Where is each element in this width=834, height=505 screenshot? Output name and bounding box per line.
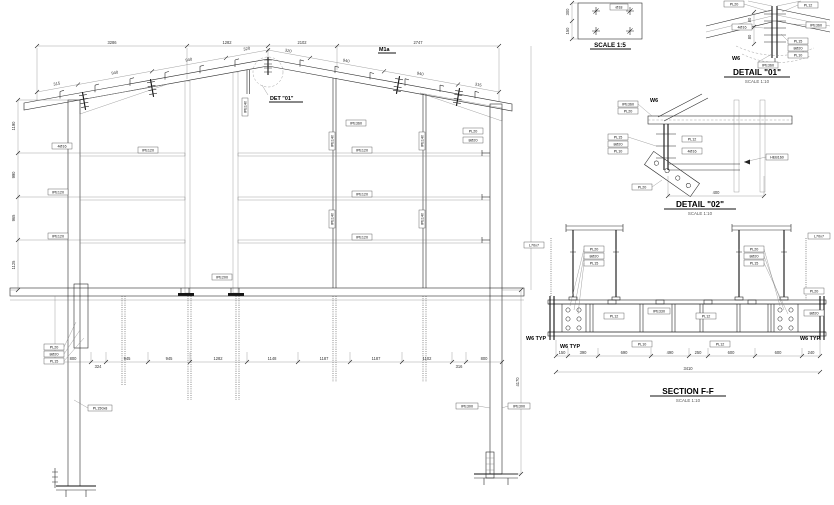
svg-text:IPE140: IPE140 (244, 101, 248, 113)
section-mark: 8Ø20 (608, 141, 628, 147)
svg-text:PL15: PL15 (794, 40, 803, 44)
section-ff: L70x7 L70x7 PL20 8Ø20 PL15 PL20 8Ø20 PL1… (524, 224, 830, 403)
svg-text:80: 80 (747, 34, 752, 39)
detail01-title: DETAIL "01" (733, 68, 781, 77)
weld-note: W6 TYP (526, 336, 546, 342)
svg-text:IPE300: IPE300 (461, 405, 473, 409)
opening-jamb-left (185, 81, 190, 293)
section-mark: 8Ø20 (744, 253, 764, 259)
svg-text:800: 800 (481, 356, 489, 361)
svg-text:IPE120: IPE120 (142, 149, 154, 153)
piles (122, 296, 426, 400)
svg-text:945: 945 (166, 356, 174, 361)
section-mark: PL12 (696, 313, 716, 319)
section-mark: PL150x8 (88, 405, 112, 411)
svg-text:IPE140: IPE140 (421, 135, 425, 147)
section-title: SECTION F-F (662, 387, 713, 396)
svg-text:IPE120: IPE120 (356, 149, 368, 153)
svg-text:4Ø16: 4Ø16 (57, 145, 66, 149)
section-mark: L70x7 (808, 233, 830, 239)
bolt-group-right (778, 308, 793, 330)
svg-text:IPE330: IPE330 (653, 310, 665, 314)
floor-beam (10, 288, 524, 296)
roof-brace (658, 94, 708, 121)
svg-text:IPE300: IPE300 (513, 405, 525, 409)
svg-text:690: 690 (621, 350, 629, 355)
svg-text:PL20: PL20 (810, 290, 819, 294)
section-mark: PL20 (463, 128, 483, 134)
svg-text:1148: 1148 (268, 356, 278, 361)
section-scale: SCALE 1:10 (676, 398, 701, 403)
svg-text:250: 250 (695, 350, 703, 355)
section-mark: PL15 (44, 358, 64, 364)
section-mark: IPE330 (648, 308, 670, 314)
cad-drawing-canvas: DET "01" M1a 3286 1282 2102 2747 315 940… (0, 0, 834, 505)
svg-text:PL20: PL20 (624, 110, 633, 114)
main-elevation: DET "01" M1a 3286 1282 2102 2747 315 940… (10, 40, 531, 497)
svg-text:PL10: PL10 (638, 343, 647, 347)
end-plate (664, 124, 668, 170)
svg-text:PL20: PL20 (638, 186, 647, 190)
section-mark: 8Ø20 (44, 351, 64, 357)
svg-text:8Ø20: 8Ø20 (589, 255, 598, 259)
svg-text:IPE360: IPE360 (622, 103, 634, 107)
eave-haunch-left (80, 84, 168, 114)
svg-text:Ø18: Ø18 (616, 6, 623, 10)
ridge-post-stub (247, 70, 250, 94)
section-mark: IPE140 (242, 98, 248, 116)
svg-text:4170: 4170 (515, 377, 520, 387)
section-mark: PL10 (788, 52, 808, 58)
svg-text:1187: 1187 (372, 356, 382, 361)
svg-text:8Ø20: 8Ø20 (749, 255, 758, 259)
interior-posts (333, 78, 426, 288)
svg-text:490: 490 (667, 350, 675, 355)
section-mark: 4Ø16 (52, 143, 72, 149)
purlin-flags-right (300, 60, 479, 99)
svg-text:800: 800 (70, 356, 78, 361)
section-mark: IPE120 (48, 189, 68, 195)
svg-text:1282: 1282 (213, 356, 223, 361)
svg-text:990: 990 (11, 171, 16, 179)
detail-column (760, 100, 765, 192)
svg-text:PL12: PL12 (716, 343, 725, 347)
svg-text:4Ø16: 4Ø16 (737, 26, 746, 30)
section-mark: PL12 (798, 2, 818, 8)
svg-text:8Ø20: 8Ø20 (49, 353, 58, 357)
opening-jamb-right (233, 72, 238, 293)
section-mark: PL12 (682, 136, 702, 142)
svg-text:240: 240 (808, 350, 816, 355)
svg-text:945: 945 (124, 356, 132, 361)
svg-text:PL20: PL20 (750, 248, 759, 252)
section-mark: PL12 (710, 341, 730, 347)
weld-note: W6 TYP (800, 336, 820, 342)
section-mark: 8Ø20 (804, 310, 824, 316)
svg-text:IPE120: IPE120 (52, 191, 64, 195)
dim-chain-section: 150 390 690 490 250 600 600 240 3410 (554, 340, 822, 374)
svg-text:940: 940 (111, 69, 119, 75)
section-mark: IPE120 (48, 233, 68, 239)
section-mark: 8Ø20 (788, 45, 808, 51)
section-mark: IPE200 (212, 274, 232, 280)
section-mark: PL15 (608, 134, 628, 140)
svg-text:L70x7: L70x7 (814, 235, 824, 239)
section-mark: IPE120 (352, 234, 372, 240)
svg-text:IPE140: IPE140 (331, 213, 335, 225)
svg-text:2747: 2747 (413, 40, 423, 45)
svg-text:PL20: PL20 (590, 248, 599, 252)
section-mark: IPE300 (456, 403, 478, 409)
svg-text:IPE140: IPE140 (331, 135, 335, 147)
drawing-sheet: DET "01" M1a 3286 1282 2102 2747 315 940… (0, 0, 834, 505)
section-mark: IPE360 (618, 101, 638, 107)
svg-text:1282: 1282 (222, 40, 232, 45)
svg-text:IPE360: IPE360 (810, 24, 822, 28)
svg-text:300: 300 (565, 8, 570, 16)
right-column (490, 104, 502, 474)
section-mark: IPE140 (419, 210, 425, 228)
section-mark: PL20 (44, 344, 64, 350)
baseplate-detail: Ø18 300 150 SCALE 1:5 (565, 1, 642, 49)
section-mark: IPE360 (806, 22, 826, 28)
section-mark: PL20 (584, 246, 604, 252)
section-mark: PL15 (584, 260, 604, 266)
svg-text:PL12: PL12 (610, 315, 619, 319)
svg-text:PL10: PL10 (614, 150, 623, 154)
svg-text:8Ø20: 8Ø20 (468, 139, 477, 143)
weld-note: W6 (650, 98, 658, 104)
section-mark: PL10 (608, 148, 628, 154)
svg-text:IPE200: IPE200 (216, 276, 228, 280)
girts (80, 153, 490, 243)
svg-text:4Ø16: 4Ø16 (687, 150, 696, 154)
svg-text:PL20: PL20 (50, 346, 59, 350)
section-mark: PL20 (618, 108, 638, 114)
svg-text:HEB160: HEB160 (770, 156, 784, 160)
section-mark: PL20 (724, 1, 744, 7)
svg-text:IPE140: IPE140 (421, 213, 425, 225)
baseplate-scale-label: SCALE 1:5 (594, 42, 626, 49)
weld-note: W6 (732, 56, 740, 62)
bolted-splice-ladder (74, 284, 88, 348)
svg-text:IPE360: IPE360 (762, 64, 774, 68)
svg-text:965: 965 (11, 214, 16, 222)
svg-text:150: 150 (559, 350, 567, 355)
svg-text:PL150x8: PL150x8 (93, 407, 108, 411)
stiffeners (562, 304, 798, 332)
section-mark: PL12 (604, 313, 624, 319)
bolt-group-left (566, 308, 581, 330)
section-mark: 4Ø16 (732, 24, 752, 30)
svg-text:390: 390 (580, 350, 588, 355)
section-mark: PL20 (804, 288, 824, 294)
purlin-flags-left (60, 59, 239, 99)
dim-chain-left: 1190 990 965 1125 (10, 98, 80, 292)
section-mark: IPE140 (419, 132, 425, 150)
section-mark: IPE140 (329, 210, 335, 228)
svg-text:PL12: PL12 (804, 4, 813, 8)
svg-text:PL15: PL15 (50, 360, 59, 364)
svg-text:2102: 2102 (297, 40, 307, 45)
detail-02: W6 400 PL15 8Ø20 PL10 IPE360 PL20 PL12 4… (608, 94, 792, 216)
svg-text:3410: 3410 (683, 366, 693, 371)
svg-text:940: 940 (416, 70, 424, 76)
svg-text:320: 320 (284, 47, 292, 53)
section-mark: PL15 (788, 38, 808, 44)
section-mark: PL20 (632, 184, 652, 190)
svg-text:IPE120: IPE120 (356, 193, 368, 197)
detail01-scale: SCALE 1:10 (745, 79, 770, 84)
jamb-base-pad (178, 293, 194, 296)
member-tag: M1a (379, 47, 390, 53)
svg-text:315: 315 (474, 81, 482, 87)
svg-text:IPE360: IPE360 (350, 122, 362, 126)
svg-text:1102: 1102 (423, 356, 433, 361)
svg-text:PL15: PL15 (614, 136, 623, 140)
section-mark: PL10 (632, 341, 652, 347)
svg-text:PL15: PL15 (590, 262, 599, 266)
section-mark: IPE120 (352, 191, 372, 197)
svg-text:PL20: PL20 (469, 130, 478, 134)
svg-text:PL15: PL15 (750, 262, 759, 266)
dim-chain-bottom: 800 324 945 945 1282 1148 1187 1187 1102… (53, 296, 504, 369)
svg-text:940: 940 (342, 57, 350, 63)
section-mark: IPE360 (346, 120, 366, 126)
svg-text:PL10: PL10 (794, 54, 803, 58)
svg-text:600: 600 (775, 350, 783, 355)
detail-column (734, 100, 739, 192)
svg-text:IPE120: IPE120 (52, 235, 64, 239)
svg-text:8Ø20: 8Ø20 (613, 143, 622, 147)
detail02-title: DETAIL "02" (676, 200, 724, 209)
dim-right-height: 4170 (502, 288, 523, 476)
section-mark: L70x7 (524, 242, 544, 248)
svg-text:3286: 3286 (107, 40, 117, 45)
jamb-base-pad (228, 293, 244, 296)
svg-text:1187: 1187 (320, 356, 330, 361)
section-mark: IPE120 (138, 147, 158, 153)
ridge-detail-callout: DET "01" (270, 96, 294, 102)
svg-text:8Ø20: 8Ø20 (793, 47, 802, 51)
svg-text:PL20: PL20 (730, 3, 739, 7)
svg-text:1125: 1125 (11, 260, 16, 270)
svg-text:L70x7: L70x7 (529, 244, 539, 248)
svg-text:1190: 1190 (11, 121, 16, 131)
svg-text:IPE120: IPE120 (356, 236, 368, 240)
section-mark: Ø18 (610, 4, 628, 10)
section-mark: IPE140 (329, 132, 335, 150)
svg-text:600: 600 (728, 350, 736, 355)
section-mark: PL15 (744, 260, 764, 266)
section-mark: HEB160 (766, 154, 788, 160)
svg-text:316: 316 (456, 364, 464, 369)
dim-chain-top: 3286 1282 2102 2747 (35, 40, 531, 290)
detail-01: 80 80 PL20 PL12 IPE360 4Ø16 PL15 8Ø20 PL… (706, 1, 830, 84)
svg-text:80: 80 (747, 17, 752, 22)
svg-text:150: 150 (565, 27, 570, 35)
section-mark: 8Ø20 (463, 137, 483, 143)
svg-text:324: 324 (95, 364, 103, 369)
svg-text:320: 320 (243, 45, 251, 51)
svg-text:940: 940 (185, 56, 193, 62)
svg-text:PL12: PL12 (688, 138, 697, 142)
section-mark: PL20 (744, 246, 764, 252)
section-mark: 4Ø16 (682, 148, 702, 154)
svg-text:315: 315 (53, 80, 61, 86)
section-mark: IPE120 (352, 147, 372, 153)
svg-text:400: 400 (713, 190, 721, 195)
section-mark: 8Ø20 (584, 253, 604, 259)
detail02-scale: SCALE 1:10 (688, 211, 713, 216)
svg-text:8Ø20: 8Ø20 (809, 312, 818, 316)
section-mark: IPE300 (508, 403, 530, 409)
svg-text:PL12: PL12 (702, 315, 711, 319)
end-plates (550, 296, 824, 340)
